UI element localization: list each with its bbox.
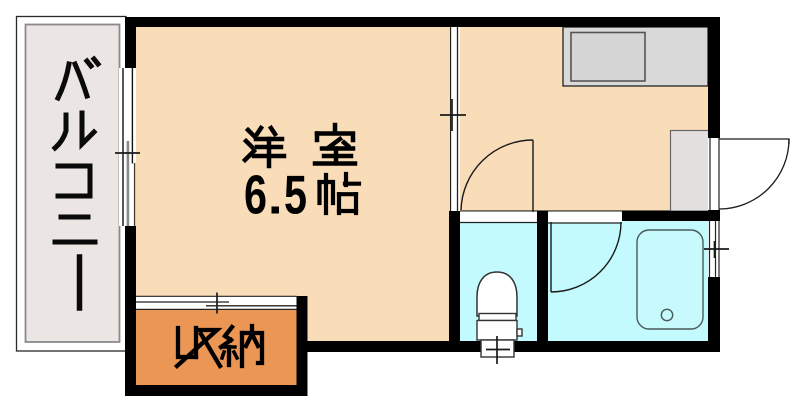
svg-text:5: 5 xyxy=(284,164,307,226)
svg-text:6: 6 xyxy=(244,164,267,226)
